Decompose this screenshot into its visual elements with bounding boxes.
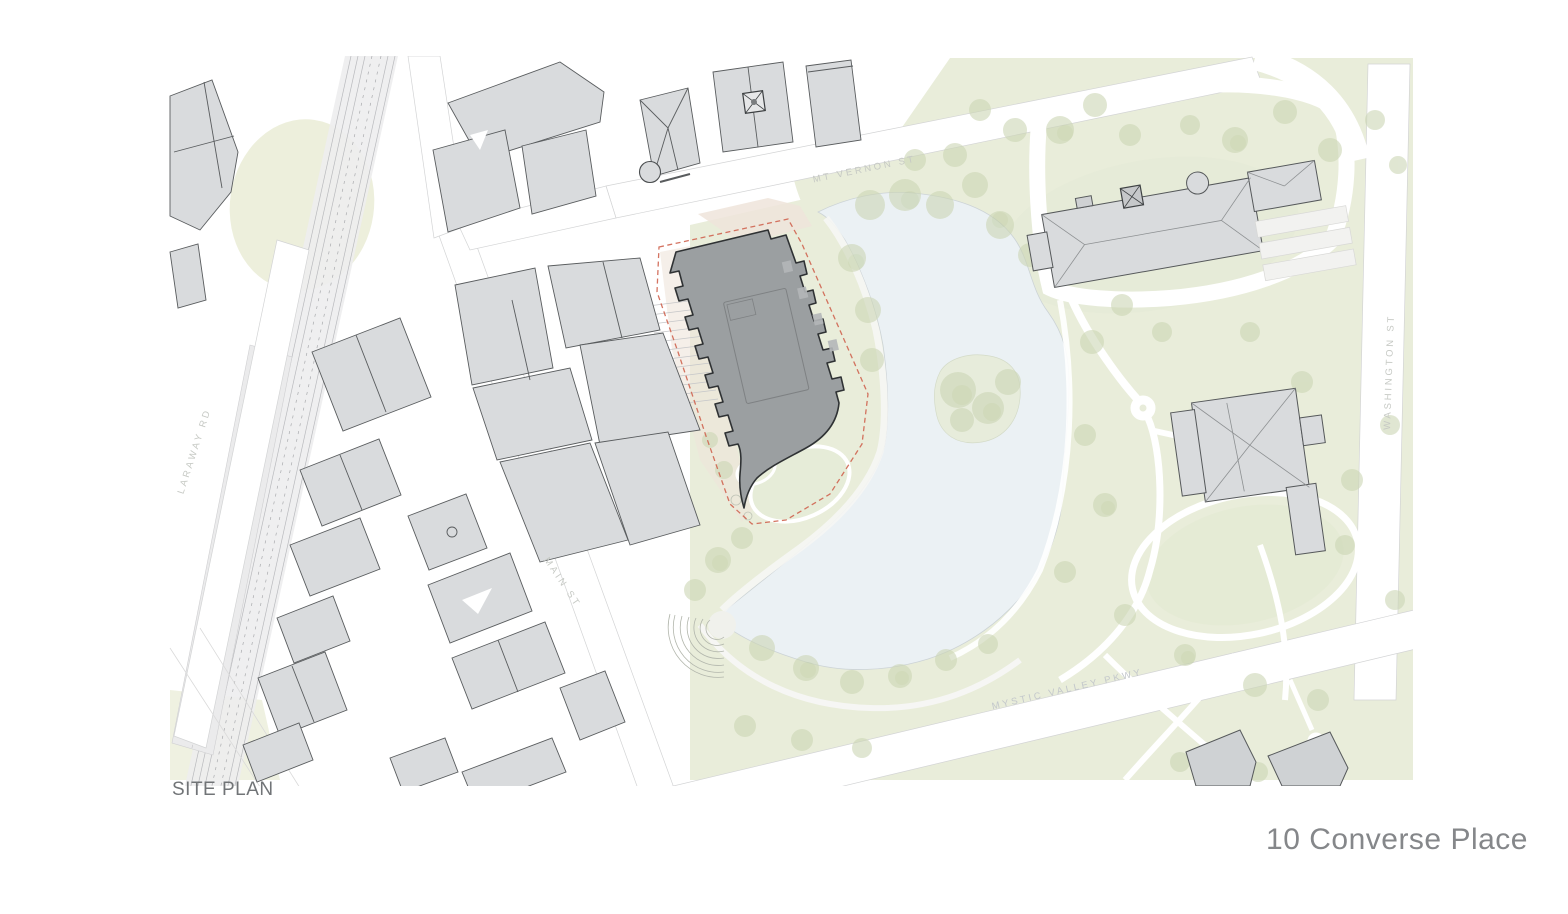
site-plan-drawing: MT VERNON ST WASHINGTON ST MYSTIC VALLEY… — [0, 0, 1568, 914]
drawing-caption: SITE PLAN — [172, 779, 274, 801]
street-label-laraway: LARAWAY RD — [176, 407, 214, 495]
context-buildings-northwest — [170, 80, 238, 308]
house-with-tower — [640, 88, 701, 183]
presentation-page: MT VERNON ST WASHINGTON ST MYSTIC VALLEY… — [0, 0, 1568, 914]
context-buildings-midblock — [455, 258, 700, 562]
flat-roof-building — [713, 62, 793, 152]
cupola-icon — [1120, 185, 1143, 208]
project-title: 10 Converse Place — [1266, 823, 1528, 857]
